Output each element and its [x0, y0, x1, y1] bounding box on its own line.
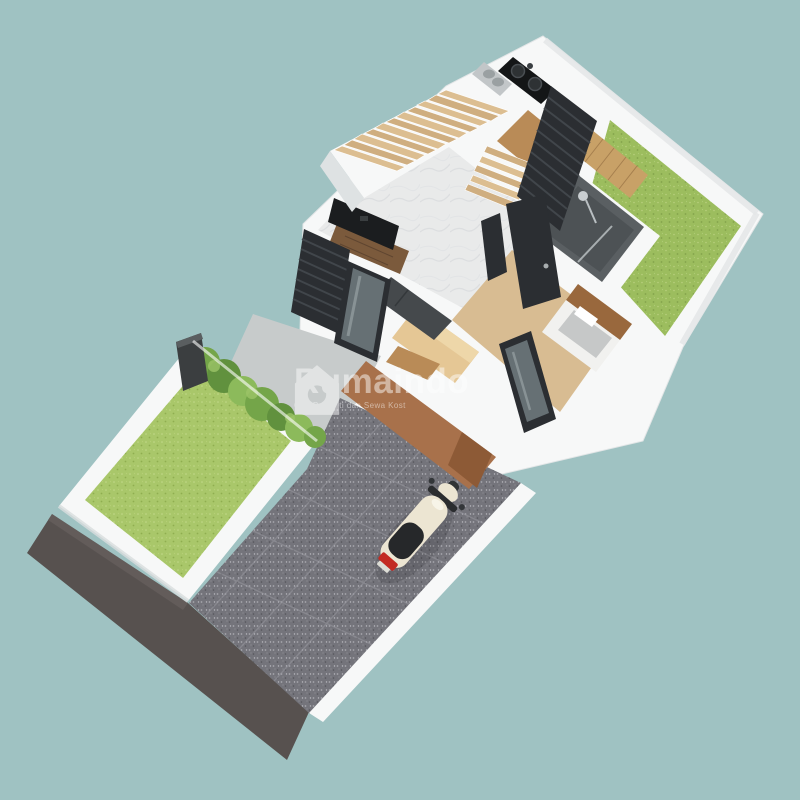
door-handle [544, 264, 549, 269]
scene-canvas [0, 0, 800, 800]
floorplan-render: Rumaindo Cari Properti dan Sewa Kost [0, 0, 800, 800]
